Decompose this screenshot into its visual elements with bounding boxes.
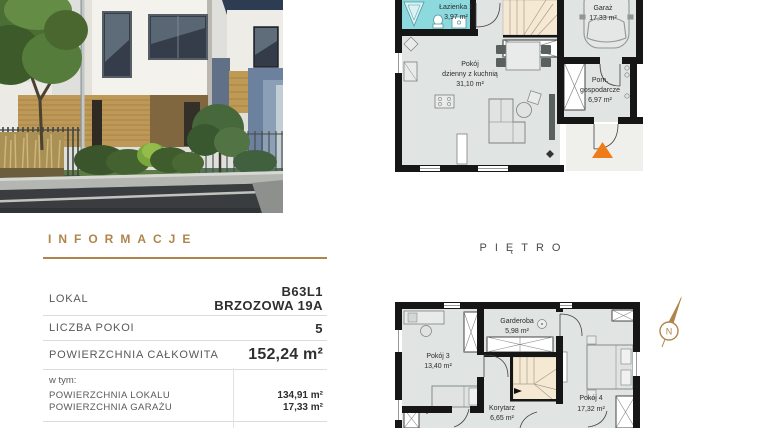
room-label-pokoj4: Pokój 4	[579, 395, 602, 402]
lokal-value-line1: B63L1	[214, 285, 323, 299]
upper-floor-heading: PIĘTRO	[420, 242, 620, 254]
room-area-pokoj3: 13,40 m²	[424, 363, 452, 370]
tv	[549, 94, 555, 140]
compass-north-letter: N	[666, 327, 673, 337]
room-area-pokoj-dzienny: 31,10 m²	[456, 81, 484, 88]
powierzchnia-lokalu-label: POWIERZCHNIA LOKALU	[49, 390, 233, 402]
ground-floor-plan: Łazienka 1 3,97 m² Pokój dzienny z kuchn…	[390, 0, 650, 175]
north-compass-icon: N	[648, 288, 694, 358]
table-row-lokal: LOKAL B63L1 BRZOZOWA 19A	[43, 282, 327, 316]
room-area-pom-gospodarcze: 6,97 m²	[588, 97, 612, 104]
room-area-korytarz: 6,65 m²	[490, 415, 514, 422]
table-row-liczba-pokoi: LICZBA POKOI 5	[43, 316, 327, 341]
lokal-value-line2: BRZOZOWA 19A	[214, 299, 323, 313]
gold-rule	[43, 257, 327, 259]
w-tym-label: w tym:	[49, 375, 233, 386]
room-area-pokoj4: 17,32 m²	[577, 406, 605, 413]
info-section: INFORMACJE LOKAL B63L1 BRZOZOWA 19A LICZ…	[43, 232, 327, 422]
lokal-label: LOKAL	[49, 293, 88, 305]
powierzchnia-calkowita-value: 152,24 m²	[248, 346, 323, 364]
room-label-pom-gospodarcze-2: gospodarcze	[580, 87, 620, 94]
room-label-pokoj3: Pokój 3	[426, 353, 449, 360]
room-label-korytarz: Korytarz	[489, 405, 516, 412]
powierzchnia-calkowita-label: POWIERZCHNIA CAŁKOWITA	[49, 349, 219, 361]
liczba-pokoi-value: 5	[315, 321, 323, 336]
powierzchnia-garazu-value: 17,33 m²	[233, 402, 323, 414]
estate-photo-illustration	[0, 0, 283, 213]
info-heading: INFORMACJE	[48, 232, 327, 246]
chair	[421, 326, 432, 337]
room-label-pokoj-dzienny: Pokój	[461, 61, 479, 68]
room-label-garderoba: Garderoba	[500, 318, 534, 325]
w-tym-labels: w tym: POWIERZCHNIA LOKALU POWIERZCHNIA …	[49, 375, 233, 414]
room-area-garderoba: 5,98 m²	[505, 328, 529, 335]
estate-photo	[0, 0, 283, 213]
room-area-lazienka: 3,97 m²	[444, 14, 468, 21]
info-table: LOKAL B63L1 BRZOZOWA 19A LICZBA POKOI 5 …	[43, 282, 327, 422]
dining-table	[506, 42, 540, 70]
staircase	[510, 357, 558, 402]
room-area-garaz: 17,33 m²	[589, 15, 617, 22]
armchair	[517, 103, 532, 118]
table-row-w-tym: w tym: POWIERZCHNIA LOKALU POWIERZCHNIA …	[43, 370, 327, 422]
table-vertical-divider	[233, 368, 234, 428]
lokal-value: B63L1 BRZOZOWA 19A	[214, 285, 323, 313]
room-label-garaz: Garaż	[593, 5, 613, 12]
upper-floor-plan: Garderoba 5,98 m² Pokój 3 13,40 m² Pokój…	[390, 295, 650, 428]
powierzchnia-lokalu-value: 134,91 m²	[233, 390, 323, 402]
property-page: Łazienka 1 3,97 m² Pokój dzienny z kuchn…	[0, 0, 760, 428]
powierzchnia-garazu-label: POWIERZCHNIA GARAŻU	[49, 402, 233, 414]
stove	[435, 95, 454, 108]
room-label-pokoj-dzienny-2: dzienny z kuchnią	[442, 71, 498, 78]
table-row-powierzchnia-calkowita: POWIERZCHNIA CAŁKOWITA 152,24 m²	[43, 341, 327, 370]
room-label-lazienka: Łazienka 1	[439, 4, 473, 11]
liczba-pokoi-label: LICZBA POKOI	[49, 322, 134, 334]
room-label-pom-gospodarcze: Pom.	[592, 77, 608, 84]
w-tym-values: 134,91 m² 17,33 m²	[233, 375, 323, 414]
